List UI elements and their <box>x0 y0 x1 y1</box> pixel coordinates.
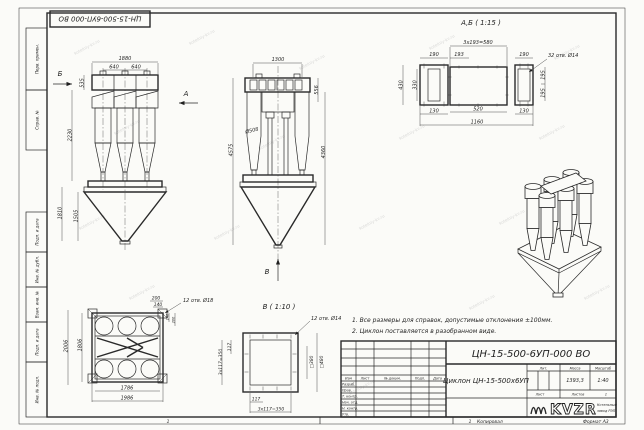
dim-1786: 1786 <box>121 386 134 392</box>
footer-mark-2: 1 <box>469 419 472 425</box>
note-line-2: 2. Циклон поставляется в разобранном вид… <box>352 328 496 335</box>
dim-195b: 195 <box>541 88 547 98</box>
col-izm: Изм <box>345 377 352 381</box>
margin-label: Перв. примен. <box>35 44 40 74</box>
dim-330: 330 <box>413 80 419 90</box>
note-line-1: 1. Все размеры для справок, допустимые о… <box>352 317 552 324</box>
view-arrow-v-label: В <box>265 268 270 276</box>
dim-1810: 1810 <box>58 207 64 220</box>
dim-1806: 1806 <box>78 339 84 352</box>
sheets-label: Листов <box>571 393 585 397</box>
company-line-1: Котельный <box>597 403 618 407</box>
margin-label: Справ. № <box>35 110 40 129</box>
dim-4575: 4575 <box>229 144 235 157</box>
view-front: 1880 640 640 535 2230 1810 1505 Б А <box>53 56 198 252</box>
dim-140b: 140 <box>166 314 170 320</box>
watermark-text: kotelniy-kv.ru <box>538 123 566 141</box>
product-name: Циклон ЦН-15-500х6УП <box>443 377 530 385</box>
company-line-2: завод РЭП <box>597 409 616 413</box>
dim-190a: 190 <box>429 52 439 58</box>
row-utv: Утв. <box>342 413 349 417</box>
view-isometric <box>518 170 601 298</box>
drawing-sheet: kotelniy-kv.ru kotelniy-kv.ru kotelniy-k… <box>0 0 644 430</box>
margin-label: Подп. и дата <box>35 218 40 246</box>
col-data: Дата <box>432 377 442 381</box>
iso-cyclone <box>577 179 593 246</box>
row-nachotd: Нач. отд. <box>342 401 358 405</box>
dim-140a: 140 <box>154 302 163 308</box>
mass-label: Масса <box>570 367 581 371</box>
dim-117-bottom: 117 <box>252 397 261 403</box>
title-doc-number: ЦН-15-500-6УП-000 ВО <box>472 349 591 360</box>
margin-label: Взам. инв. № <box>35 291 40 318</box>
lit-label: Лит. <box>539 367 548 371</box>
watermark-text: kotelniy-kv.ru <box>583 283 611 301</box>
watermark-text: kotelniy-kv.ru <box>468 293 496 311</box>
dim-1986: 1986 <box>121 396 134 402</box>
detail-ab-title: А,Б ( 1:15 ) <box>460 19 501 27</box>
dim-sq380: □380 <box>309 355 315 368</box>
dim-step: 3x193=580 <box>463 40 492 46</box>
dim-190b: 190 <box>519 52 529 58</box>
title-block: Изм Лист № докум. Подп. Дата Разраб. Про… <box>341 341 618 418</box>
view-v-holes-label: 12 отв. Ø14 <box>311 315 341 322</box>
dim-640-right: 640 <box>131 65 141 71</box>
logo-coil-icon <box>531 408 546 415</box>
dim-117-left: 117 <box>227 343 233 352</box>
col-doc: № докум. <box>383 377 401 381</box>
dim-sq480: □480 <box>319 355 325 368</box>
margin-label: Инв. № дубл. <box>35 256 40 283</box>
dim-193: 193 <box>454 52 464 58</box>
watermark-text: kotelniy-kv.ru <box>188 28 216 46</box>
view-v: В ( 1:10 ) 12 отв. Ø14 117 3х117=350 □38… <box>218 303 341 413</box>
dim-2230: 2230 <box>68 129 74 142</box>
dim-430: 430 <box>399 80 405 90</box>
margin-label: Инв. № подл. <box>35 376 40 404</box>
footer-format: Формат А3 <box>583 419 609 425</box>
sheets-value: 1 <box>605 393 607 397</box>
margin-label: Подп. и дата <box>35 328 40 356</box>
dim-4360: 4360 <box>321 146 327 159</box>
view-plan: 200 140 12 отв. Ø18 140 200 2006 1806 17… <box>64 296 214 403</box>
dim-195a: 195 <box>541 70 547 80</box>
watermark-text: kotelniy-kv.ru <box>398 123 426 141</box>
scale-label: Масштаб <box>595 367 611 371</box>
scale-value: 1:40 <box>597 378 608 384</box>
view-side: 1300 556 Ø508 4575 4360 В <box>229 57 328 281</box>
watermark-text: kotelniy-kv.ru <box>298 53 326 71</box>
watermark-text: kotelniy-kv.ru <box>358 213 386 231</box>
watermark-text: kotelniy-kv.ru <box>498 208 526 226</box>
watermark-text: kotelniy-kv.ru <box>73 38 101 56</box>
plan-holes-label: 12 отв. Ø18 <box>183 297 213 304</box>
mass-value: 1393,3 <box>566 378 584 384</box>
view-v-title: В ( 1:10 ) <box>263 303 296 311</box>
dim-200a: 200 <box>152 296 161 302</box>
dim-350-bottom: 3х117=350 <box>258 407 285 413</box>
dim-130b: 130 <box>519 109 529 115</box>
dim-640-left: 640 <box>109 65 119 71</box>
sheet-label: Лист <box>535 393 546 397</box>
row-razrab: Разраб. <box>342 383 355 387</box>
logo-text: KVZR <box>550 402 597 418</box>
dim-520: 520 <box>473 107 483 113</box>
detail-holes-label: 32 отв. Ø14 <box>548 52 578 59</box>
watermark-text: kotelniy-kv.ru <box>428 33 456 51</box>
dim-1300: 1300 <box>272 57 285 63</box>
watermark-text: kotelniy-kv.ru <box>213 223 241 241</box>
dim-d508: Ø508 <box>244 125 260 135</box>
footer-mark-1: 1 <box>167 419 170 425</box>
margin-column: Перв. примен. Справ. № Подп. и дата Инв.… <box>26 28 47 417</box>
dim-350-left: 3х117=350 <box>218 349 224 376</box>
dim-2006: 2006 <box>64 340 70 353</box>
row-prov: Пров. <box>342 389 352 393</box>
dim-1880: 1880 <box>119 56 132 62</box>
detail-ab: А,Б ( 1:15 ) 3x193=580 190 193 190 32 от… <box>399 19 579 126</box>
row-tkontr: Т. контр. <box>342 395 358 399</box>
view-arrow-a-label: А <box>183 90 189 98</box>
dim-556: 556 <box>314 85 320 95</box>
view-arrow-b-label: Б <box>58 70 63 78</box>
notes: 1. Все размеры для справок, допустимые о… <box>352 317 552 335</box>
dim-1160: 1160 <box>471 120 484 126</box>
dim-535: 535 <box>80 78 86 88</box>
dim-130a: 130 <box>429 109 439 115</box>
drawing-canvas: kotelniy-kv.ru kotelniy-kv.ru kotelniy-k… <box>0 0 644 430</box>
col-list: Лист <box>360 377 371 381</box>
footer-copied: Копировал <box>477 419 503 425</box>
col-podp: Подп. <box>415 377 425 381</box>
dim-1505: 1505 <box>74 210 80 223</box>
dim-200b: 200 <box>172 317 176 323</box>
row-nkontr: Н. контр. <box>342 407 358 411</box>
stamp-doc-number: ЦН-15-500-6УП-000 ВО <box>58 15 141 23</box>
